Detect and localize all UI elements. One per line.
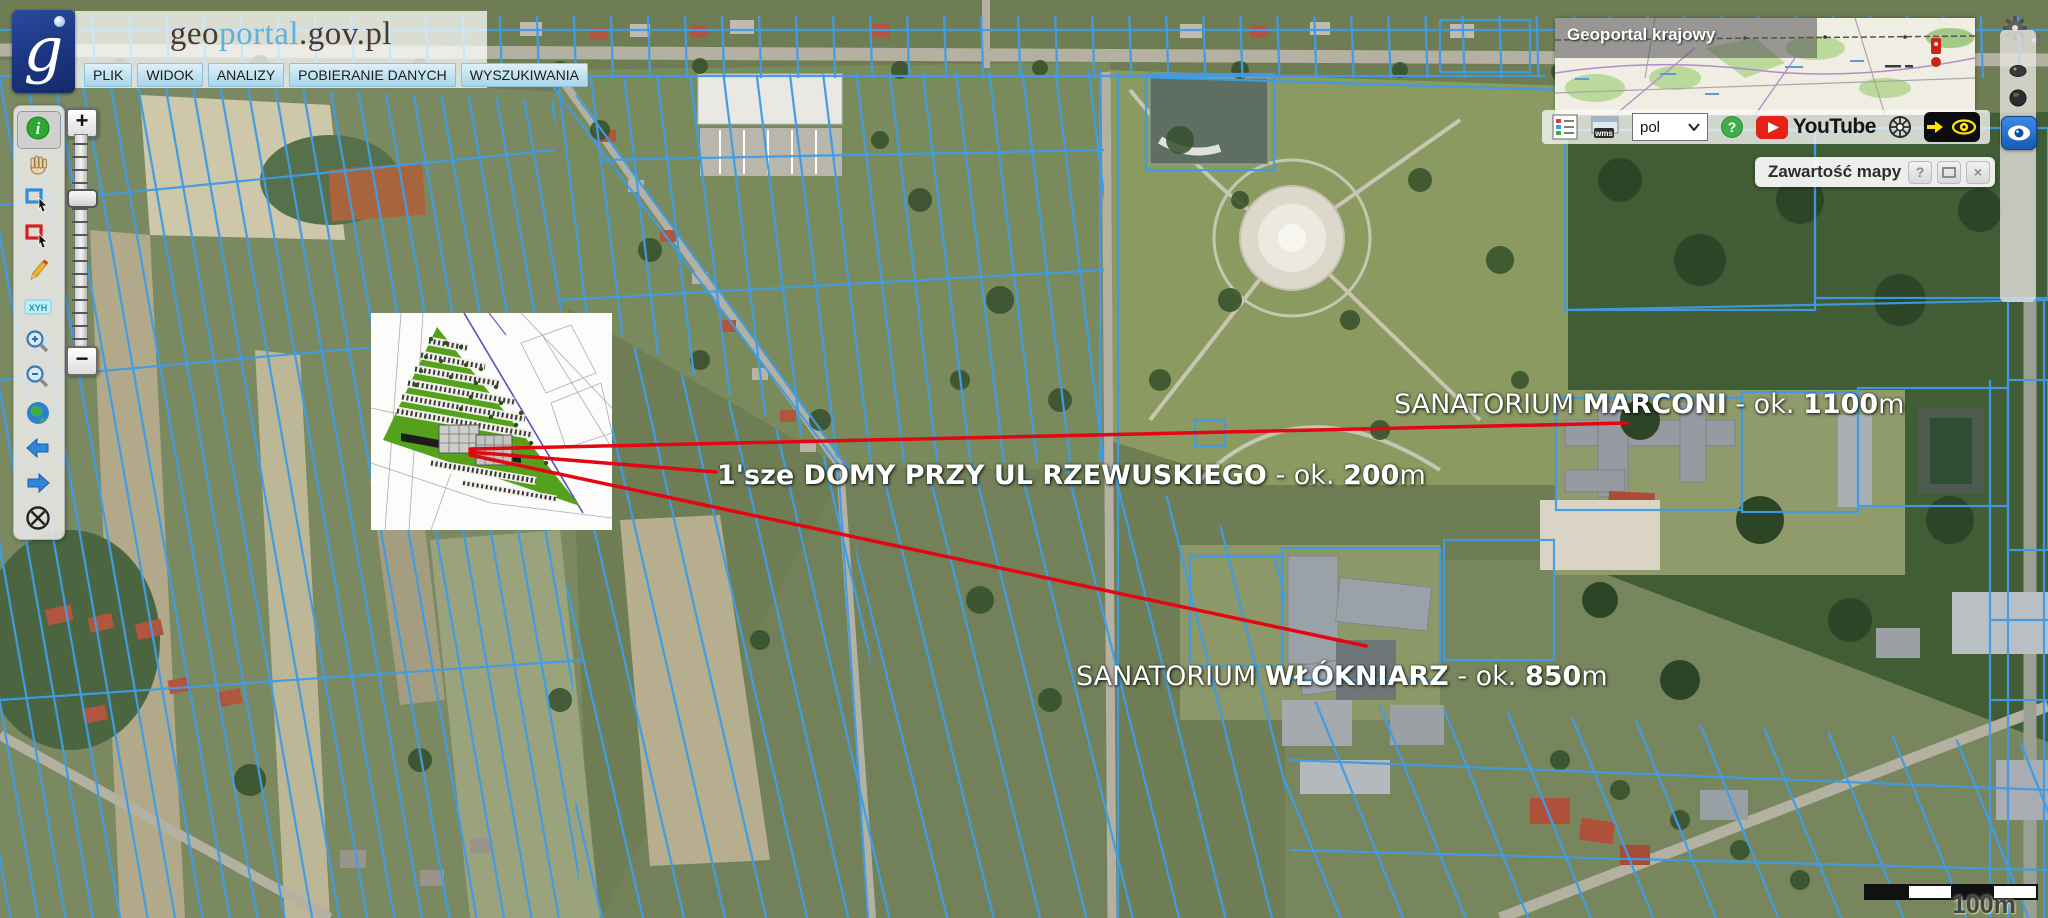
annotation-wlokniarz: SANATORIUM WŁÓKNIARZ - ok. 850m [1076,661,1608,692]
maximize-icon [1942,167,1956,178]
high-contrast-toggle[interactable] [1924,112,1980,142]
menu-item-pobieranie-danych[interactable]: POBIERANIE DANYCH [289,63,456,87]
minimize-oval-button[interactable] [2006,62,2030,80]
draw-tool-button[interactable] [23,256,53,286]
panel-title: Zawartość mapy [1768,162,1908,182]
select-rectangle-tool-button[interactable] [23,185,53,215]
svg-text:i: i [36,119,41,138]
youtube-play-icon [1756,116,1788,139]
zoom-out-tool-button[interactable] [23,362,53,392]
info-tool-button[interactable]: i [23,113,53,143]
toggle-panels-eye-button[interactable] [2001,116,2037,150]
pan-tool-button[interactable] [23,149,53,179]
svg-text:XYH: XYH [29,303,48,313]
sphere-button[interactable] [2008,88,2028,108]
menu-item-wyszukiwania[interactable]: WYSZUKIWANIA [461,63,588,87]
main-menu: PLIK WIDOK ANALIZY POBIERANIE DANYCH WYS… [84,63,588,87]
menu-item-widok[interactable]: WIDOK [137,63,202,87]
map-content-panel-header[interactable]: Zawartość mapy ? × [1755,157,1995,187]
help-button[interactable]: ? [1720,115,1744,139]
panel-close-button[interactable]: × [1966,161,1990,184]
annotation-marconi: SANATORIUM MARCONI - ok. 1100m [1394,389,1904,420]
geoportal-app: SANATORIUM MARCONI - ok. 1100m 1'sze DOM… [0,0,2048,918]
deselect-rectangle-tool-button[interactable] [23,221,53,251]
panel-help-button[interactable]: ? [1908,161,1932,184]
site-plan-overlay [371,313,612,530]
map-options-toolbar: wms pol ? YouTube [1542,110,1990,144]
menu-item-analizy[interactable]: ANALIZY [208,63,284,87]
xyh-coordinates-tool-button[interactable]: XYH [23,292,53,322]
previous-view-button[interactable] [23,433,53,463]
annotation-rzewuskiego: 1'sze DOMY PRZY UL RZEWUSKIEGO - ok. 200… [717,460,1426,491]
wms-icon[interactable]: wms [1590,114,1620,140]
panel-maximize-button[interactable] [1937,161,1961,184]
svg-text:?: ? [1727,119,1736,135]
wheel-icon[interactable] [1888,115,1912,139]
language-select[interactable]: pol [1632,113,1708,141]
zoom-slider-track[interactable] [74,134,88,350]
full-extent-globe-button[interactable] [23,398,53,428]
cancel-tool-button[interactable] [23,503,53,533]
overview-map-title: Geoportal krajowy [1567,25,1715,45]
youtube-link[interactable]: YouTube [1756,115,1876,139]
overview-map[interactable]: Geoportal krajowy [1555,18,1975,115]
scale-label: 100m [1952,891,2016,918]
geoportal-logo[interactable]: g [12,10,75,93]
contrast-eye-icon [1951,118,1977,136]
park-plaza [1240,186,1344,290]
menu-item-plik[interactable]: PLIK [84,63,132,87]
zoom-out-button[interactable]: − [66,346,98,376]
svg-text:wms: wms [1594,129,1613,138]
zoom-slider-handle[interactable] [67,189,98,208]
arrow-right-icon [1927,119,1944,135]
chevron-down-icon [1688,123,1700,131]
logo-dot-icon [54,16,65,27]
site-title: geoportal.gov.pl [75,16,487,53]
next-view-button[interactable] [23,468,53,498]
zoom-in-tool-button[interactable] [23,327,53,357]
overview-location-marker [1931,38,1941,67]
legend-icon[interactable] [1552,114,1578,140]
